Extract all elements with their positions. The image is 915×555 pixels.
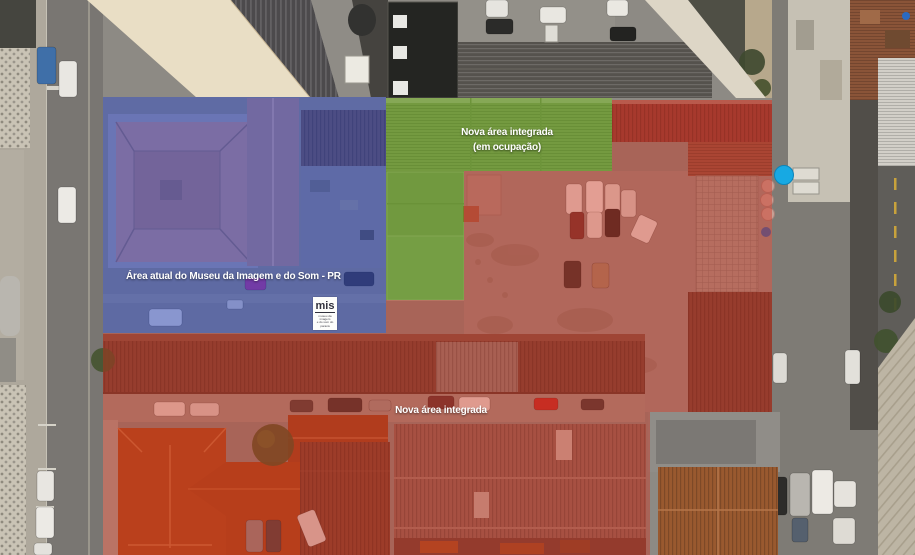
car — [486, 19, 513, 34]
car — [790, 473, 810, 516]
car — [845, 350, 860, 384]
car — [607, 0, 628, 16]
car — [58, 187, 76, 223]
car — [834, 481, 856, 507]
top-buildings — [87, 0, 772, 98]
car — [610, 27, 636, 41]
car — [59, 61, 77, 97]
bottom-center-building — [648, 412, 780, 555]
mis-logo-subtext: museu da imagem e do som do paraná — [313, 315, 337, 329]
tree — [879, 291, 901, 313]
car — [773, 353, 787, 383]
mis-logo-acronym: mis — [315, 300, 336, 313]
car — [540, 7, 566, 23]
car — [37, 471, 54, 501]
car — [792, 518, 808, 542]
water-tank — [775, 166, 794, 185]
green-region-label-line2: (em ocupação) — [461, 141, 553, 156]
red-region-label: Nova área integrada — [395, 404, 487, 419]
car — [36, 507, 54, 538]
aerial-site-photo: Área atual do Museu da Imagem e do Som -… — [0, 0, 915, 555]
blue-region-overlay — [103, 97, 386, 333]
car — [486, 0, 508, 17]
green-region-label-line1: Nova área integrada — [461, 126, 553, 141]
car — [37, 47, 56, 84]
mis-logo: mis museu da imagem e do som do paraná — [313, 297, 337, 330]
blue-bin — [902, 12, 910, 20]
blue-region-label: Área atual do Museu da Imagem e do Som -… — [126, 270, 341, 285]
green-region-label: Nova área integrada (em ocupação) — [461, 126, 553, 155]
car — [34, 543, 52, 555]
car — [833, 518, 855, 544]
car — [812, 470, 833, 514]
